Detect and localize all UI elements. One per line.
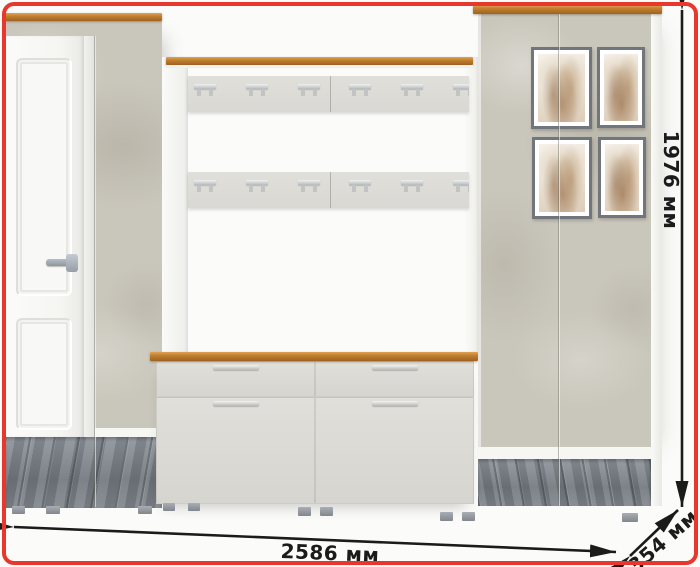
right-wardrobe-mirror: [478, 459, 651, 506]
bench-top-trim: [150, 352, 478, 361]
coat-hook-icon: [453, 84, 469, 97]
left-wardrobe-mirror: [5, 437, 162, 508]
bench-door: [156, 397, 315, 504]
door-panel-lower: [16, 318, 72, 430]
hook-rail-upper: [188, 76, 469, 112]
coat-rack-left-column: [162, 57, 188, 357]
door-handle-rosette: [66, 254, 78, 272]
coat-hook-icon: [246, 180, 268, 193]
bench-drawer: [315, 361, 474, 397]
right-wardrobe-side-panel: [651, 14, 662, 506]
width-dimension-label: 2586 мм: [280, 539, 380, 567]
right-wardrobe-top-trim: [473, 5, 662, 14]
furniture-foot: [462, 512, 475, 521]
drawer-handle-icon: [372, 365, 418, 370]
botanical-art-print: [531, 47, 592, 129]
furniture-foot: [163, 503, 175, 511]
coat-hook-icon: [349, 84, 371, 97]
coat-hook-icon: [246, 84, 268, 97]
coat-hook-icon: [401, 84, 423, 97]
botanical-art-print: [597, 47, 645, 128]
right-wardrobe-door-gap: [558, 14, 559, 506]
coat-hook-icon: [453, 180, 469, 193]
height-dimension-label: 1976 мм: [659, 131, 683, 230]
furniture-foot: [298, 507, 311, 516]
door-handle-bar-icon: [372, 401, 418, 406]
drawer-handle-icon: [213, 365, 259, 370]
product-image: 2586 мм 1976 мм 354 мм: [0, 0, 700, 567]
coat-rack-shelf-underside: [166, 65, 473, 68]
botanical-art-print: [532, 137, 592, 219]
coat-hook-icon: [194, 180, 216, 193]
furniture-foot: [188, 503, 200, 511]
coat-hook-icon: [298, 180, 320, 193]
furniture-foot: [622, 513, 638, 522]
furniture-foot: [12, 506, 25, 514]
botanical-art-print: [598, 137, 646, 218]
right-wardrobe-base-stripe: [478, 447, 651, 459]
shoe-bench: [156, 361, 474, 504]
furniture-foot: [46, 506, 60, 514]
coat-rack-shelf: [166, 57, 473, 65]
furniture-foot: [320, 507, 333, 516]
left-wardrobe-door-gap: [94, 36, 95, 507]
furniture-foot: [440, 512, 453, 521]
right-wardrobe-front-edge: [478, 14, 481, 447]
coat-hook-icon: [298, 84, 320, 97]
bench-drawer: [156, 361, 315, 397]
hook-rail-lower: [188, 172, 469, 208]
coat-hook-icon: [401, 180, 423, 193]
bench-door: [315, 397, 474, 504]
coat-hook-icon: [349, 180, 371, 193]
width-arrow: [14, 527, 616, 552]
door-handle-bar-icon: [213, 401, 259, 406]
white-paneled-door: [6, 36, 84, 437]
coat-hook-icon: [194, 84, 216, 97]
left-wardrobe-top-trim: [5, 13, 162, 21]
furniture-foot: [138, 506, 152, 514]
